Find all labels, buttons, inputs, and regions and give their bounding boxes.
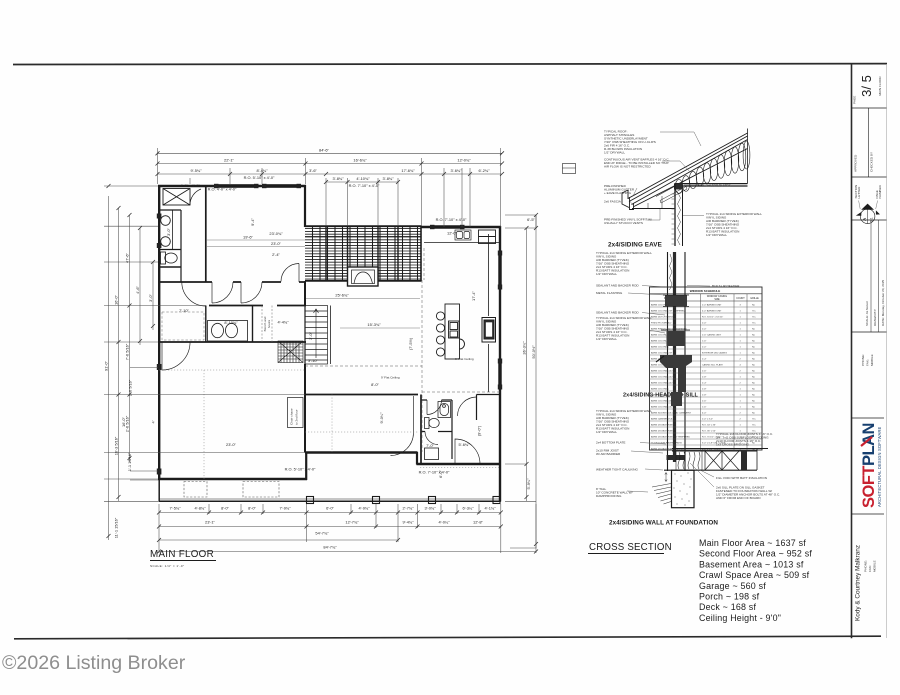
svg-text:3/ 5: 3/ 5 — [859, 75, 874, 97]
svg-text:7'-6 5/16": 7'-6 5/16" — [125, 343, 130, 360]
svg-text:+ EAVE FLASHING: + EAVE FLASHING — [604, 191, 632, 195]
svg-text:3'-0": 3'-0" — [308, 332, 313, 340]
svg-text:2'-6 5/16": 2'-6 5/16" — [128, 379, 133, 396]
svg-text:16'-0": 16'-0" — [121, 416, 126, 427]
svg-text:7'-0": 7'-0" — [426, 443, 434, 448]
svg-text:LETTER: LETTER — [857, 186, 861, 199]
svg-text:1/2" DRYWALL: 1/2" DRYWALL — [596, 272, 617, 276]
svg-text:2'-4": 2'-4" — [702, 359, 707, 361]
svg-text:1x3 CROSS BRIDGING: 1x3 CROSS BRIDGING — [716, 443, 750, 447]
svg-text:FAX:: FAX: — [868, 565, 872, 572]
svg-text:7'-10": 7'-10" — [179, 308, 190, 313]
svg-text:9' Flat Ceiling: 9' Flat Ceiling — [455, 357, 474, 361]
svg-text:Main Floor Area ~ 1637 sf: Main Floor Area ~ 1637 sf — [699, 538, 806, 548]
svg-text:COUNT: COUNT — [736, 297, 745, 300]
svg-text:DRAWN BY:: DRAWN BY: — [873, 309, 877, 326]
svg-text:Porch ~ 198 sf: Porch ~ 198 sf — [699, 592, 760, 602]
svg-text:DAMPPROOFING: DAMPPROOFING — [596, 494, 622, 498]
svg-text:6'-5": 6'-5" — [527, 217, 535, 222]
svg-text:2x6 TOP PLATES: 2x6 TOP PLATES — [706, 184, 731, 188]
svg-text:AWN6 COLONIAL A 2: AWN6 COLONIAL A 2 — [651, 406, 673, 409]
svg-text:Chair chase: Chair chase — [290, 408, 294, 425]
svg-text:SOFTPLAN: SOFTPLAN — [860, 423, 878, 508]
svg-text:SCALE: 1/4" = 1'-0": SCALE: 1/4" = 1'-0" — [150, 564, 185, 568]
svg-text:2'-6" CASING UNIT: 2'-6" CASING UNIT — [702, 334, 722, 337]
svg-text:SCALE: As Noted: SCALE: As Noted — [865, 301, 869, 326]
svg-text:4'-0" x 1'-0": 4'-0" x 1'-0" — [180, 183, 200, 188]
svg-text:2'-8": 2'-8" — [702, 389, 707, 391]
svg-text:R.O. 7'-10" x 4'-0": R.O. 7'-10" x 4'-0" — [419, 470, 450, 475]
svg-text:1/2" DRYWALL: 1/2" DRYWALL — [706, 233, 727, 237]
svg-text:to 2nd floor: to 2nd floor — [295, 410, 299, 425]
svg-text:16'-3 5/16": 16'-3 5/16" — [114, 436, 119, 455]
svg-text:FIXED PICTURE A 2: FIXED PICTURE A 2 — [651, 322, 672, 325]
svg-text:4'-4¾": 4'-4¾" — [278, 320, 290, 325]
svg-text:AIR FLOW IS NOT RESTRICTED: AIR FLOW IS NOT RESTRICTED — [604, 165, 651, 169]
svg-text:2'-0" AWNING UNIT: 2'-0" AWNING UNIT — [702, 304, 722, 307]
svg-text:2x6 FASCIA: 2x6 FASCIA — [604, 200, 622, 204]
svg-text:Garage ~ 560 sf: Garage ~ 560 sf — [699, 581, 766, 591]
svg-text:17'-6¾": 17'-6¾" — [401, 168, 415, 173]
svg-text:R.O. 4'-0" x 4'-0": R.O. 4'-0" x 4'-0" — [208, 187, 237, 192]
svg-text:©2026 Listing Broker: ©2026 Listing Broker — [2, 652, 186, 674]
svg-text:84'-7¾": 84'-7¾" — [323, 545, 337, 550]
svg-text:16'-6¾": 16'-6¾" — [353, 158, 367, 163]
svg-text:Crawl Space Area ~ 509 sf: Crawl Space Area ~ 509 sf — [699, 570, 810, 580]
svg-text:12'-8": 12'-8" — [473, 520, 484, 525]
svg-text:AWN6 COLONIAL A 2: AWN6 COLONIAL A 2 — [651, 394, 673, 397]
svg-text:15'-3¾": 15'-3¾" — [367, 322, 381, 327]
svg-text:SEALANT AND BACKER ROD: SEALANT AND BACKER ROD — [596, 284, 639, 288]
svg-text:47'-6": 47'-6" — [125, 252, 130, 263]
svg-text:8'-10¾": 8'-10¾" — [224, 320, 238, 325]
svg-text:2'-0": 2'-0" — [702, 323, 707, 325]
svg-text:3'-10": 3'-10" — [308, 358, 319, 363]
svg-text:2'-8": 2'-8" — [702, 395, 707, 397]
svg-text:USUALLY STUCCO VENTS: USUALLY STUCCO VENTS — [604, 221, 643, 225]
svg-text:R.O. 36" x 50": R.O. 36" x 50" — [702, 431, 716, 433]
svg-text:PAGE: PAGE — [853, 96, 857, 104]
svg-text:CASING SILL PLATE: CASING SILL PLATE — [702, 364, 723, 367]
svg-text:22'-1": 22'-1" — [224, 158, 235, 163]
svg-text:4'-8¾": 4'-8¾" — [195, 506, 207, 511]
svg-text:AWN6 COLONIAL A 2: AWN6 COLONIAL A 2 — [651, 376, 673, 379]
svg-text:23'-0": 23'-0" — [271, 241, 282, 246]
svg-text:WEATHER TIGHT CAULKING: WEATHER TIGHT CAULKING — [596, 468, 639, 472]
svg-text:4'-10¾": 4'-10¾" — [356, 176, 370, 181]
svg-text:1'-6": 1'-6" — [702, 407, 707, 409]
svg-text:54'-7¾": 54'-7¾" — [315, 531, 329, 536]
svg-text:16'-0": 16'-0" — [114, 294, 119, 305]
svg-text:2'-4": 2'-4" — [702, 383, 707, 385]
svg-text:25'-6¾": 25'-6¾" — [335, 293, 349, 298]
svg-text:AWN6 COLONIAL A 2: AWN6 COLONIAL A 2 — [651, 382, 673, 385]
svg-text:W/ AIR BARRIER: W/ AIR BARRIER — [596, 452, 621, 456]
svg-text:MOBILE: MOBILE — [873, 560, 877, 572]
svg-text:4'-6": 4'-6" — [135, 286, 140, 294]
svg-text:PHONE:: PHONE: — [864, 560, 868, 572]
svg-text:17'-4": 17'-4" — [471, 290, 476, 301]
svg-text:9'-0¼": 9'-0¼" — [379, 412, 384, 424]
svg-text:7'-5¾": 7'-5¾" — [170, 506, 182, 511]
svg-text:2'-6": 2'-6" — [702, 401, 707, 403]
svg-text:Second Floor Area ~ 952 sf: Second Floor Area ~ 952 sf — [699, 549, 812, 559]
svg-text:AWN6 SLIDING COLONIAL CASEMENT: AWN6 SLIDING COLONIAL CASEMENT — [651, 412, 692, 415]
svg-text:8'-0": 8'-0" — [221, 506, 229, 511]
svg-text:DATE: Monday, October 20, 202: DATE: Monday, October 20, 2025 — [881, 280, 885, 326]
svg-text:8'-0": 8'-0" — [371, 382, 379, 387]
svg-text:R.O. 7'-10" x 4'-0": R.O. 7'-10" x 4'-0" — [436, 217, 467, 222]
svg-text:2'-6": 2'-6" — [702, 371, 707, 373]
svg-text:23'-0¾": 23'-0¾" — [269, 231, 283, 236]
svg-text:GRILLE: GRILLE — [750, 297, 759, 300]
svg-text:AWN6 COLONIAL A 2: AWN6 COLONIAL A 2 — [651, 400, 673, 403]
svg-text:2'-0": 2'-0" — [702, 329, 707, 331]
svg-text:2x4/SIDING EAVE: 2x4/SIDING EAVE — [608, 242, 662, 249]
svg-text:8'-0": 8'-0" — [248, 506, 256, 511]
svg-text:3'-6¾": 3'-6¾" — [451, 168, 463, 173]
svg-text:6'-2¾": 6'-2¾" — [479, 168, 491, 173]
svg-text:AWN6 DUTCH SWING: AWN6 DUTCH SWING — [651, 316, 674, 319]
svg-text:3'-8¾": 3'-8¾" — [333, 176, 345, 181]
svg-text:ARCHITECTURAL DESIGN SOFTWARE: ARCHITECTURAL DESIGN SOFTWARE — [877, 426, 882, 507]
svg-text:3'-0": 3'-0" — [148, 294, 153, 302]
svg-text:R.O. 53 1/2" x 53 1/4": R.O. 53 1/2" x 53 1/4" — [702, 317, 723, 319]
svg-text:9'-4": 9'-4" — [250, 218, 255, 226]
svg-text:3'-0": 3'-0" — [166, 228, 171, 236]
svg-text:6'-0": 6'-0" — [326, 506, 334, 511]
svg-text:AWN6 CASEMENT A 2: AWN6 CASEMENT A 2 — [651, 418, 674, 421]
svg-text:R.O. 5'-10" x 4'-0": R.O. 5'-10" x 4'-0" — [285, 467, 316, 472]
svg-text:(7'-5½): (7'-5½) — [408, 337, 413, 350]
svg-text:4'-1¾": 4'-1¾" — [485, 506, 497, 511]
svg-text:36'-3¾": 36'-3¾" — [522, 341, 527, 355]
svg-text:AWN6 COLONIAL A 2: AWN6 COLONIAL A 2 — [651, 370, 673, 373]
svg-text:2'-7¾": 2'-7¾" — [403, 506, 415, 511]
svg-text:9'-4¾": 9'-4¾" — [403, 520, 415, 525]
svg-text:1/2" DRYWALL: 1/2" DRYWALL — [596, 430, 617, 434]
svg-text:2x4 BOTTOM PLATE: 2x4 BOTTOM PLATE — [596, 441, 625, 445]
svg-text:SIZE: SIZE — [714, 298, 720, 301]
svg-text:CHECKED BY: CHECKED BY — [870, 152, 874, 172]
svg-text:MAIN FLOOR: MAIN FLOOR — [150, 549, 214, 560]
svg-text:MOBILE: MOBILE — [870, 354, 874, 366]
svg-text:9'-5¾": 9'-5¾" — [191, 168, 203, 173]
svg-text:23'-1": 23'-1" — [205, 520, 216, 525]
svg-text:R.O. 5'-10" x 4'-0": R.O. 5'-10" x 4'-0" — [244, 175, 275, 180]
svg-text:12'-7¾": 12'-7¾" — [345, 520, 359, 525]
svg-text:CROSS SECTION: CROSS SECTION — [589, 542, 672, 553]
svg-text:91'-0": 91'-0" — [104, 360, 109, 371]
svg-text:DOOR DOUBLE SWING PATIO: DOOR DOUBLE SWING PATIO — [651, 442, 682, 445]
svg-text:Ceiling Height - 9'0": Ceiling Height - 9'0" — [699, 613, 781, 623]
svg-text:6'-3¼": 6'-3¼" — [463, 506, 475, 511]
svg-text:Deck ~ 168 sf: Deck ~ 168 sf — [699, 602, 756, 612]
svg-text:2'-0": 2'-0" — [702, 347, 707, 349]
svg-text:Basement Area ~ 1013 sf: Basement Area ~ 1013 sf — [699, 559, 804, 569]
svg-text:2'-0" x 3'-0": 2'-0" x 3'-0" — [702, 419, 713, 421]
svg-text:R.O. 34" x 36": R.O. 34" x 36" — [702, 425, 716, 427]
svg-text:23'-0": 23'-0" — [226, 442, 237, 447]
svg-text:2'-8": 2'-8" — [702, 377, 707, 379]
svg-text:(9'-0"): (9'-0") — [477, 425, 482, 436]
svg-text:WINDOW SCHEDULE: WINDOW SCHEDULE — [690, 289, 721, 293]
svg-text:FILL VOID WITH BATT INSULATION: FILL VOID WITH BATT INSULATION — [716, 476, 767, 480]
svg-text:3'-0¾": 3'-0¾" — [425, 506, 437, 511]
svg-text:12'-0": 12'-0" — [447, 231, 458, 236]
svg-text:84'-6": 84'-6" — [319, 148, 330, 153]
svg-text:MAIN FLOOR: MAIN FLOOR — [878, 76, 882, 96]
svg-text:7'-9¾": 7'-9¾" — [280, 506, 292, 511]
svg-text:9' Flat Ceiling: 9' Flat Ceiling — [381, 376, 400, 380]
svg-text:3'-6": 3'-6" — [309, 168, 317, 173]
svg-text:PHONE:: PHONE: — [861, 354, 865, 366]
svg-text:Kody & Courtney Malkranz: Kody & Courtney Malkranz — [855, 545, 862, 621]
svg-text:12'-0¾": 12'-0¾" — [457, 158, 471, 163]
svg-text:4': 4' — [151, 420, 156, 423]
svg-text:11'-1 15/16": 11'-1 15/16" — [114, 517, 119, 538]
svg-text:4'-9¾": 4'-9¾" — [359, 506, 371, 511]
svg-text:4'-0": 4'-0" — [702, 413, 707, 415]
svg-text:19'-6": 19'-6" — [243, 235, 254, 240]
svg-text:AWN6 DOUBLE HUNG W/ TEMPERED: AWN6 DOUBLE HUNG W/ TEMPERED — [651, 436, 690, 439]
svg-text:AWN6 DOUBLE HUNG: AWN6 DOUBLE HUNG — [651, 424, 674, 427]
svg-text:1/2" DRYWALL: 1/2" DRYWALL — [604, 151, 625, 155]
svg-text:AND 6" FROM END OF BOARD: AND 6" FROM END OF BOARD — [716, 496, 761, 500]
svg-text:3'-8¾": 3'-8¾" — [383, 176, 395, 181]
svg-text:hooks: hooks — [267, 319, 271, 328]
svg-text:2x4/SIDING WALL AT FOUNDATION: 2x4/SIDING WALL AT FOUNDATION — [609, 520, 718, 527]
svg-text:AWN6 COLONIAL W/ TEMPERED: AWN6 COLONIAL W/ TEMPERED — [651, 310, 685, 313]
svg-text:AWN6 COLONIAL: AWN6 COLONIAL — [651, 388, 670, 391]
svg-text:FAX:: FAX: — [866, 359, 870, 366]
svg-text:2'-4": 2'-4" — [272, 252, 280, 257]
svg-text:R.O. 7'-10" x 4'-0": R.O. 7'-10" x 4'-0" — [349, 183, 380, 188]
svg-text:4'-0¼": 4'-0¼" — [439, 520, 451, 525]
svg-text:1/2" DRYWALL: 1/2" DRYWALL — [596, 337, 617, 341]
svg-text:EXTERIOR DBL CASING: EXTERIOR DBL CASING — [702, 352, 727, 355]
svg-text:1'-1 15/16": 1'-1 15/16" — [127, 452, 132, 471]
svg-text:5'-6¾": 5'-6¾" — [459, 442, 471, 447]
svg-text:AWN6 COLONIAL W/: AWN6 COLONIAL W/ — [651, 352, 672, 355]
svg-text:METAL FLASHING: METAL FLASHING — [596, 291, 623, 295]
svg-text:50'-0½": 50'-0½" — [531, 345, 536, 359]
svg-text:5'-9¾": 5'-9¾" — [526, 478, 531, 490]
svg-text:NUMBER: NUMBER — [878, 184, 882, 198]
svg-text:SEALANT AND BACKER ROD: SEALANT AND BACKER ROD — [596, 311, 639, 315]
svg-text:APPROVED: APPROVED — [854, 154, 858, 172]
svg-text:1'-6": 1'-6" — [702, 341, 707, 343]
svg-text:8'-4¾": 8'-4¾" — [257, 168, 269, 173]
svg-text:AWN6 DOUBLE HUNG: AWN6 DOUBLE HUNG — [651, 430, 674, 433]
svg-text:4'-0" AWNING UNIT: 4'-0" AWNING UNIT — [702, 310, 722, 313]
